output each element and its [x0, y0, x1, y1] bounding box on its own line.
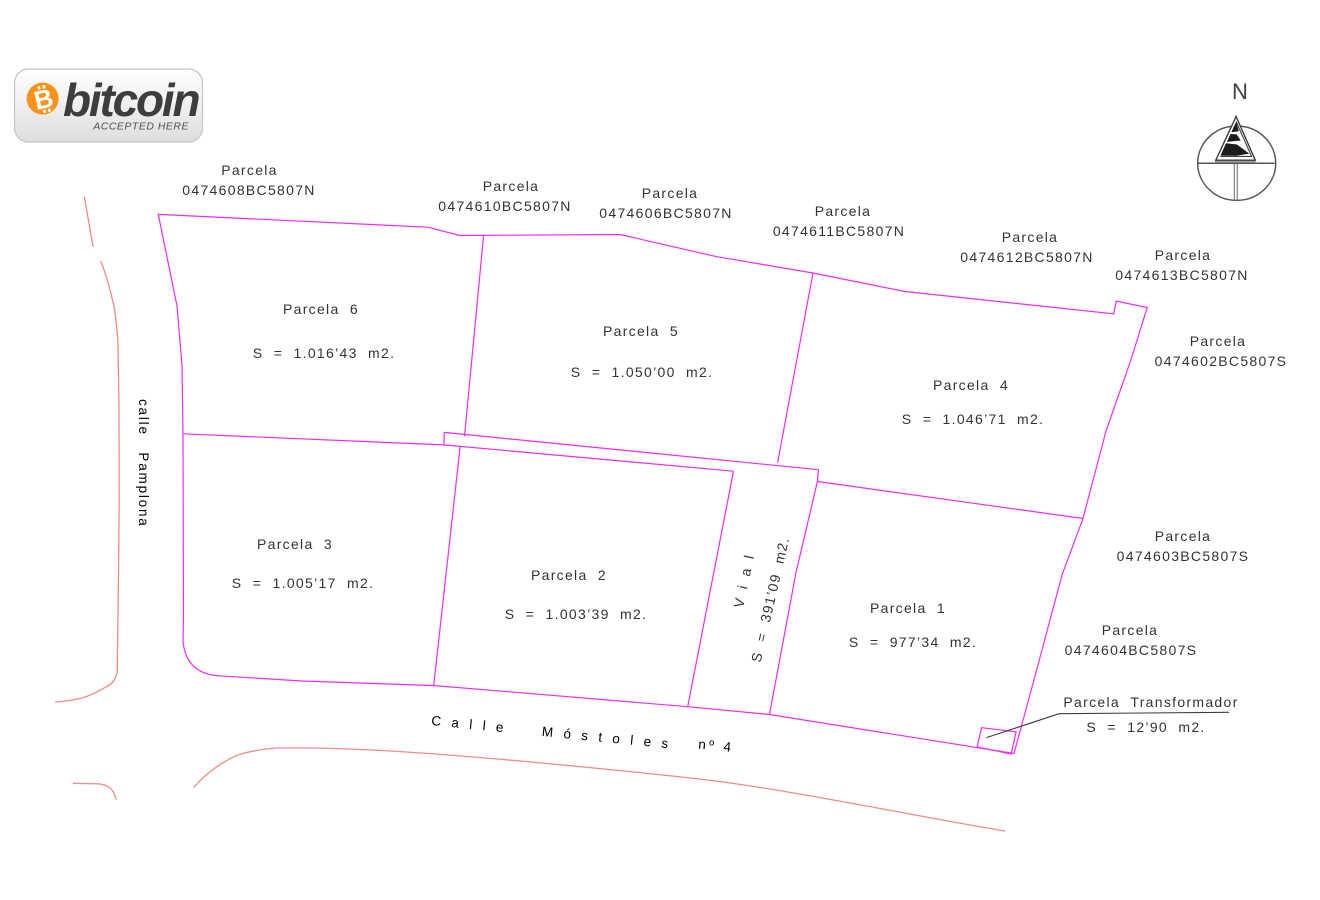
svg-text:S = 1.003’39 m2.: S = 1.003’39 m2. — [505, 606, 648, 622]
svg-text:0474613BC5807N: 0474613BC5807N — [1115, 267, 1248, 283]
svg-text:Parcela: Parcela — [1190, 333, 1247, 349]
svg-text:Parcela: Parcela — [1102, 622, 1159, 638]
svg-text:Parcela: Parcela — [815, 203, 872, 219]
svg-text:Parcela: Parcela — [221, 162, 278, 178]
svg-text:0474610BC5807N: 0474610BC5807N — [438, 198, 571, 214]
svg-text:0474603BC5807S: 0474603BC5807S — [1117, 548, 1250, 564]
svg-text:Parcela: Parcela — [1155, 247, 1212, 263]
svg-text:S = 12’90 m2.: S = 12’90 m2. — [1086, 719, 1205, 735]
svg-text:S = 1.050’00 m2.: S = 1.050’00 m2. — [571, 364, 714, 380]
svg-text:Calle Móstoles: Calle Móstoles — [431, 713, 680, 752]
svg-text:Parcela: Parcela — [1155, 528, 1212, 544]
svg-text:0474608BC5807N: 0474608BC5807N — [182, 182, 315, 198]
svg-text:Parcela: Parcela — [483, 178, 540, 194]
svg-text:Parcela 1: Parcela 1 — [870, 600, 946, 616]
svg-text:Parcela 5: Parcela 5 — [603, 323, 679, 339]
svg-text:V i a l: V i a l — [730, 551, 757, 609]
svg-text:N: N — [1232, 79, 1248, 104]
svg-text:0474612BC5807N: 0474612BC5807N — [960, 249, 1093, 265]
svg-text:0474602BC5807S: 0474602BC5807S — [1155, 353, 1288, 369]
svg-text:Parcela: Parcela — [1002, 229, 1059, 245]
svg-text:0474604BC5807S: 0474604BC5807S — [1065, 642, 1198, 658]
svg-text:Parcela 4: Parcela 4 — [933, 377, 1009, 393]
svg-text:Parcela 2: Parcela 2 — [531, 567, 607, 583]
svg-text:ACCEPTED HERE: ACCEPTED HERE — [92, 121, 189, 133]
svg-text:calle Pamplona: calle Pamplona — [136, 399, 151, 528]
svg-text:Parcela Transformador: Parcela Transformador — [1063, 694, 1238, 710]
svg-text:Parcela: Parcela — [642, 185, 699, 201]
svg-text:S = 1.005’17 m2.: S = 1.005’17 m2. — [232, 575, 375, 591]
svg-text:Parcela 3: Parcela 3 — [257, 536, 333, 552]
svg-text:Parcela 6: Parcela 6 — [283, 301, 359, 317]
svg-text:S = 1.016’43 m2.: S = 1.016’43 m2. — [253, 345, 396, 361]
svg-text:S = 1.046’71 m2.: S = 1.046’71 m2. — [902, 411, 1045, 427]
svg-text:bitcoin: bitcoin — [63, 74, 199, 126]
svg-text:0474611BC5807N: 0474611BC5807N — [773, 223, 905, 239]
svg-text:0474606BC5807N: 0474606BC5807N — [599, 205, 732, 221]
svg-text:nº 4: nº 4 — [698, 737, 735, 755]
svg-text:S = 977’34 m2.: S = 977’34 m2. — [849, 634, 977, 650]
